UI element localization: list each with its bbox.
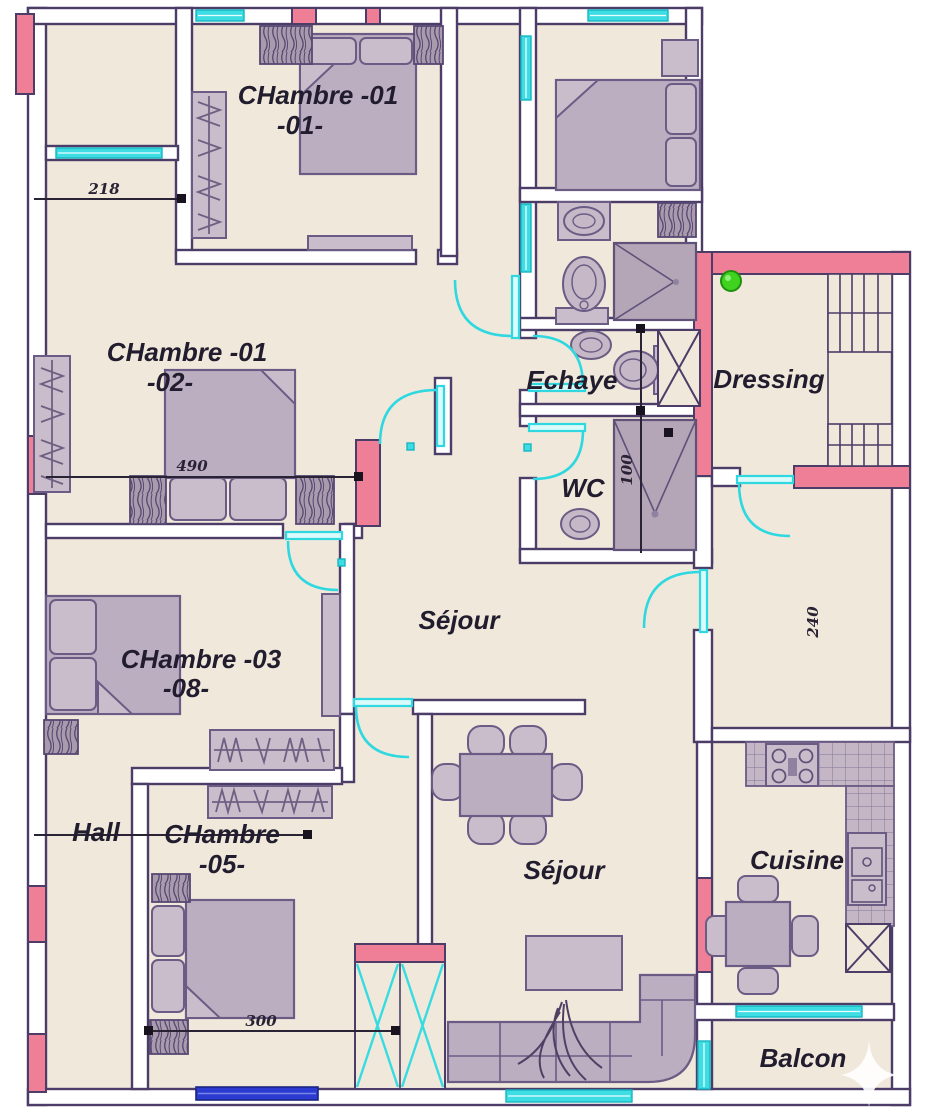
duct-echaye <box>658 330 700 406</box>
room-label-chambre-01-01-line1: CHambre -01 <box>238 80 398 110</box>
room-label-dressing: Dressing <box>713 364 824 394</box>
room-label-ch0102-line2: -02- <box>147 367 193 397</box>
door-stop-3 <box>524 444 531 451</box>
wall-hall-right <box>132 784 148 1089</box>
door-stop-1 <box>407 443 414 450</box>
window-corridor-2 <box>521 204 531 272</box>
wall-loggia-divider <box>176 8 192 260</box>
cabinet-bath-a <box>658 203 696 237</box>
nightstand-ch05-top <box>152 874 190 902</box>
dim-100: 100 <box>618 454 636 486</box>
pink-top-1 <box>292 8 316 24</box>
dim-490: 490 <box>176 457 208 475</box>
pink-pier-sejour <box>356 440 380 526</box>
room-label-sejour-main: Séjour <box>419 605 502 635</box>
dim-300: 300 <box>245 1012 277 1030</box>
sink-bath-a <box>558 202 610 240</box>
dining-table <box>460 754 552 816</box>
room-label-chambre-01-01-line2: -01- <box>277 110 323 140</box>
pink-left-top <box>16 14 34 94</box>
pink-left-lower <box>28 886 46 942</box>
pink-left-bottom <box>28 1034 46 1092</box>
pink-dressing-bottom <box>794 466 910 488</box>
floor-plan-canvas: CHambre -01 -01- CHambre -01 -02- Echaye… <box>0 0 928 1120</box>
kitchen-duct <box>846 924 890 972</box>
wall-exterior-right <box>892 252 910 1105</box>
kitchen-table <box>726 902 790 966</box>
dim-240: 240 <box>804 606 822 639</box>
window-corridor-1 <box>521 36 531 100</box>
room-label-echaye: Echaye <box>526 365 617 395</box>
shower-bath-a <box>614 243 696 320</box>
wardrobe-ch05 <box>208 786 332 818</box>
window-blue-bottom <box>196 1087 318 1100</box>
vent-shaft <box>355 962 445 1089</box>
wall-exterior-bottom <box>28 1089 910 1105</box>
wall-sejour-living-top <box>413 700 585 714</box>
wall-ch03-right <box>340 524 354 714</box>
window-balcon-sejour <box>698 1041 710 1089</box>
room-label-ch05-line1: CHambre <box>164 819 280 849</box>
window-sejour-bottom <box>506 1090 632 1102</box>
bed-bedroom-topright <box>556 80 700 190</box>
room-label-hall: Hall <box>72 817 120 847</box>
nightstand-ch0102-right <box>296 476 334 524</box>
room-label-ch0102-line1: CHambre -01 <box>107 337 267 367</box>
floor-plan-page: CHambre -01 -01- CHambre -01 -02- Echaye… <box>0 0 928 1120</box>
dresser-ch0101 <box>260 26 312 64</box>
nightstand-bedroom <box>662 40 698 76</box>
wall-sejour-living-left <box>418 714 432 948</box>
wall-ch0102-bottom <box>46 524 283 538</box>
window-balcon <box>736 1006 862 1017</box>
bed-chambre-05 <box>152 900 294 1018</box>
wardrobe-ch0101 <box>192 92 226 238</box>
wardrobe-ch0102 <box>34 356 70 492</box>
window-top-bedroom <box>588 10 668 21</box>
wall-ch0101-bottom <box>176 250 416 264</box>
door-stop-2 <box>338 559 345 566</box>
nightstand-ch0101 <box>414 26 443 64</box>
bench-ch0101 <box>308 236 412 250</box>
window-top-1 <box>196 10 244 21</box>
room-label-balcon: Balcon <box>760 1043 847 1073</box>
pink-top-2 <box>366 8 380 24</box>
nightstand-ch0102-left <box>130 476 166 524</box>
green-marker-icon <box>721 271 741 291</box>
cabinet-ch03 <box>322 594 340 716</box>
sink-wc <box>561 509 599 539</box>
coffee-table <box>526 936 622 990</box>
nightstand-ch03 <box>44 720 78 754</box>
nightstand-ch05-bottom <box>150 1020 188 1054</box>
room-label-ch05-line2: -05- <box>199 849 245 879</box>
room-label-ch03-line1: CHambre -03 <box>121 644 282 674</box>
wardrobe-ch03 <box>210 730 334 770</box>
pink-shaft-cap <box>355 944 445 962</box>
room-label-cuisine: Cuisine <box>750 845 844 875</box>
stove-icon <box>766 744 818 786</box>
room-label-ch03-line2: -08- <box>163 673 209 703</box>
wall-kitchen-top <box>712 728 910 742</box>
window-loggia <box>56 148 162 158</box>
room-label-sejour-living: Séjour <box>524 855 607 885</box>
room-label-wc: WC <box>561 473 606 503</box>
kitchen-sink-icon <box>848 833 886 905</box>
dim-218: 218 <box>87 180 120 198</box>
